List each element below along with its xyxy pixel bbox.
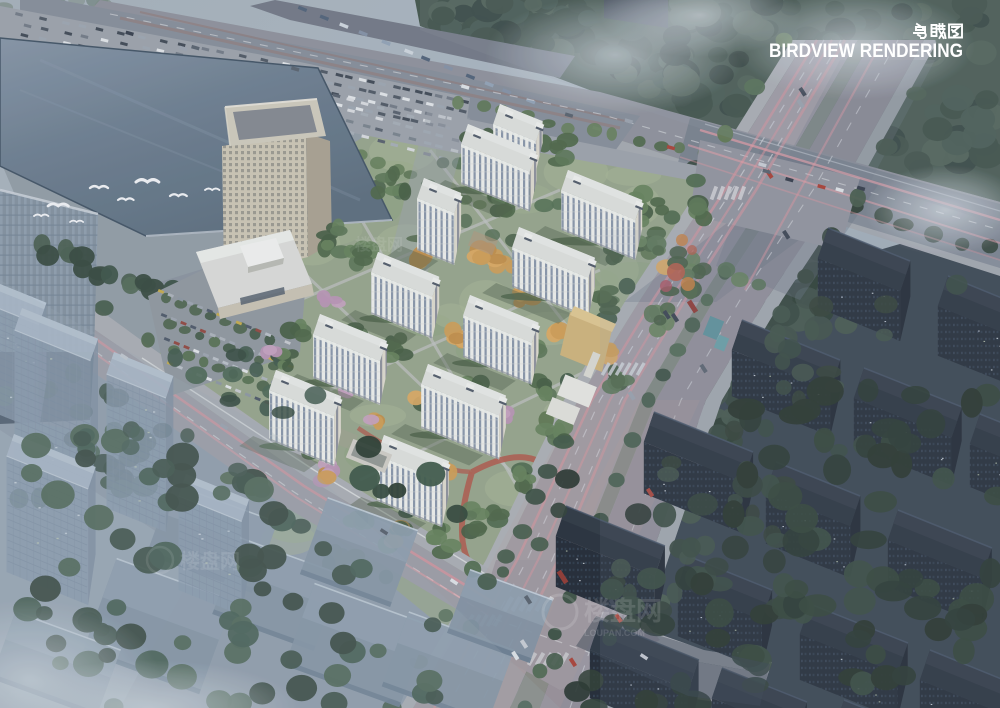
svg-text:楼盘网: 楼盘网 <box>584 596 662 626</box>
svg-text:楼盘网: 楼盘网 <box>180 549 240 573</box>
svg-text:BIRDVIEW RENDERING: BIRDVIEW RENDERING <box>769 40 963 62</box>
svg-text:楼盘网: 楼盘网 <box>355 235 403 254</box>
svg-text:LOUPAN.COM: LOUPAN.COM <box>584 628 645 638</box>
